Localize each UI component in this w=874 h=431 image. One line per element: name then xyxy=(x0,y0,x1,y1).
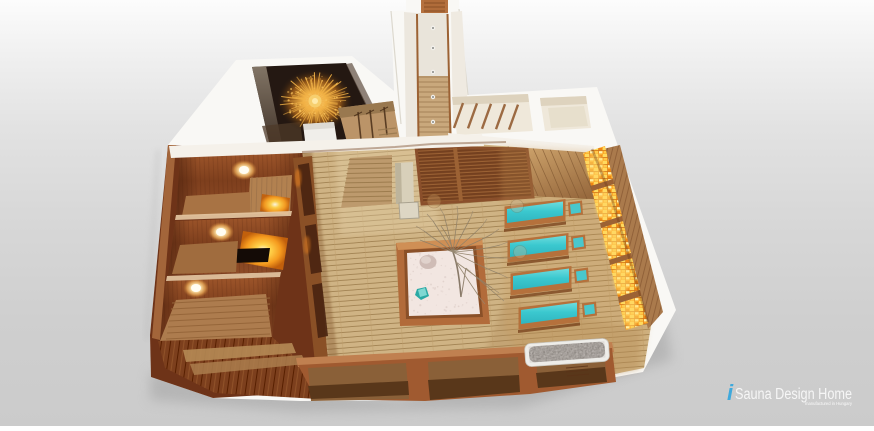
svg-text:i: i xyxy=(727,380,734,405)
svg-text:manufactured in Hungary: manufactured in Hungary xyxy=(805,401,853,406)
